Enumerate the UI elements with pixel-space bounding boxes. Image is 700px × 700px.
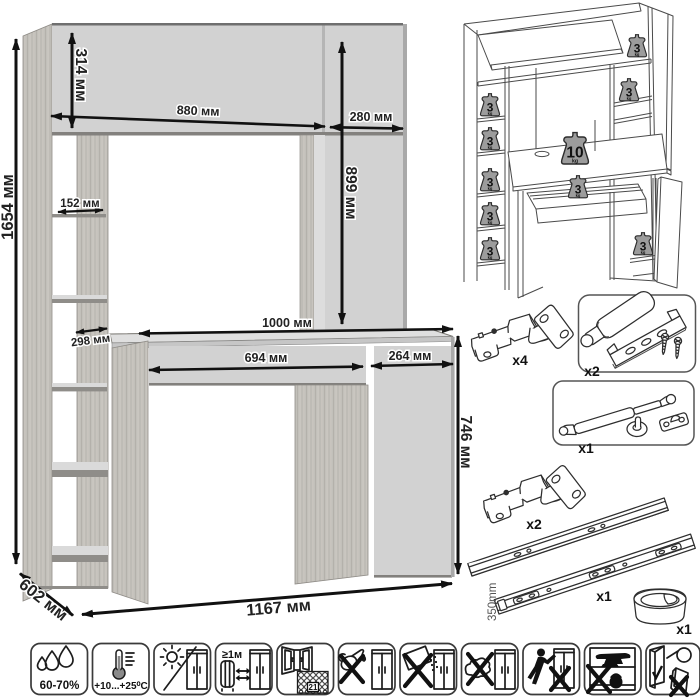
svg-text:694 мм: 694 мм xyxy=(245,351,288,365)
svg-text:x1: x1 xyxy=(578,440,594,456)
svg-text:+10...+25⁰С: +10...+25⁰С xyxy=(94,681,148,692)
svg-text:≥1м: ≥1м xyxy=(222,649,242,661)
svg-text:899 мм: 899 мм xyxy=(342,166,359,219)
svg-text:x1: x1 xyxy=(596,588,612,604)
svg-text:x4: x4 xyxy=(512,352,528,368)
svg-text:152 мм: 152 мм xyxy=(60,198,99,210)
svg-text:314 мм: 314 мм xyxy=(72,48,89,101)
svg-text:x2: x2 xyxy=(526,516,542,532)
svg-text:60-70%: 60-70% xyxy=(40,680,80,692)
svg-text:1654 мм: 1654 мм xyxy=(0,174,17,240)
svg-text:350mm: 350mm xyxy=(487,583,499,621)
svg-text:264 мм: 264 мм xyxy=(389,349,432,363)
svg-text:1000 мм: 1000 мм xyxy=(262,316,312,330)
svg-text:21: 21 xyxy=(309,683,318,692)
svg-text:x2: x2 xyxy=(584,363,600,379)
svg-text:880 мм: 880 мм xyxy=(176,103,219,119)
svg-text:x1: x1 xyxy=(676,621,692,637)
svg-text:746 мм: 746 мм xyxy=(457,415,474,468)
svg-text:280 мм: 280 мм xyxy=(350,110,393,124)
